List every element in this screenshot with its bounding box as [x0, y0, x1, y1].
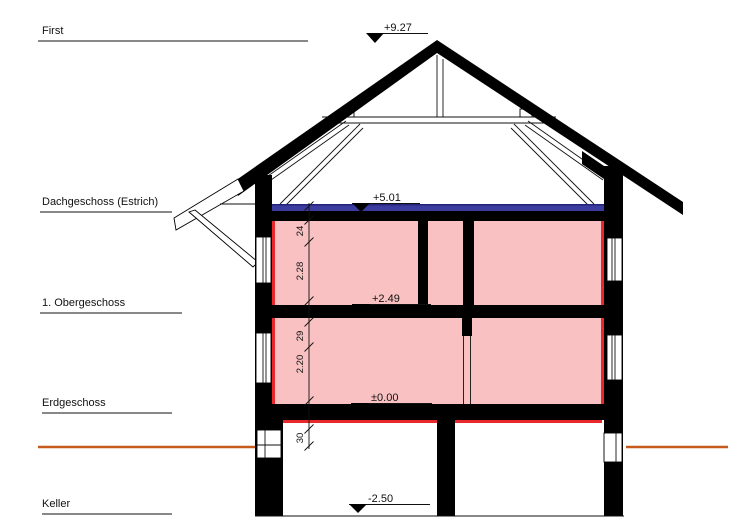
window-left-og — [256, 237, 271, 283]
dim-value-30: 30 — [295, 433, 306, 444]
dim-value-220: 2.20 — [295, 355, 306, 374]
slab-attic — [255, 211, 623, 221]
partition-og-1 — [418, 221, 428, 305]
window-right-og — [607, 238, 622, 281]
red-face-og-right — [601, 221, 604, 305]
slab-eg — [255, 404, 623, 420]
screed-band-top-edge — [272, 204, 604, 206]
rafter-right — [437, 40, 683, 215]
window-opening — [256, 237, 271, 283]
level-label-erdgeschoss: Erdgeschoss — [42, 397, 172, 413]
window-opening — [607, 335, 622, 380]
slab-og — [255, 305, 623, 318]
window-left-eg — [256, 333, 271, 383]
elevation-value: ±0.00 — [371, 392, 398, 404]
level-label-keller: Keller — [42, 498, 172, 514]
red-face-eg-right — [601, 318, 604, 404]
level-label-text: Dachgeschoss (Estrich) — [42, 196, 158, 208]
dim-value-24: 24 — [295, 226, 306, 237]
red-face-og-left — [272, 221, 275, 305]
level-label-first: First — [38, 25, 308, 41]
elevation-marker-keller: -2.50 — [349, 493, 430, 513]
storey-fill-og — [272, 221, 604, 305]
level-label-obergeschoss: 1. Obergeschoss — [40, 297, 182, 313]
building-section-drawing: First Dachgeschoss (Estrich) 1. Obergesc… — [0, 0, 729, 531]
window-left-basement — [257, 430, 281, 458]
window-opening — [256, 333, 271, 383]
elevation-triangle — [349, 504, 367, 513]
window-right-eg — [607, 335, 622, 380]
eave-brace-left — [189, 210, 258, 267]
level-label-text: Keller — [42, 498, 70, 510]
section-canvas: First Dachgeschoss (Estrich) 1. Obergesc… — [0, 0, 729, 531]
window-right-basement — [604, 433, 622, 462]
window-opening — [604, 433, 622, 462]
level-label-text: First — [42, 25, 63, 37]
elevation-value: +2.49 — [372, 293, 400, 305]
strut-left-a1 — [268, 121, 346, 176]
elevation-triangle — [366, 33, 384, 43]
level-label-text: 1. Obergeschoss — [42, 297, 126, 309]
wall-basement-interior — [437, 420, 455, 516]
door-lintel-eg — [462, 318, 472, 336]
rafter-left — [232, 40, 437, 196]
elevation-value: +9.27 — [384, 22, 412, 34]
window-opening — [257, 430, 281, 458]
window-opening — [607, 238, 622, 281]
level-label-dachgeschoss: Dachgeschoss (Estrich) — [40, 196, 172, 212]
level-label-text: Erdgeschoss — [42, 397, 106, 409]
dim-value-228: 2.28 — [295, 262, 306, 281]
storey-fill-eg — [272, 318, 604, 404]
elevation-value: +5.01 — [373, 192, 401, 204]
elevation-value: -2.50 — [368, 493, 393, 505]
dim-value-29: 29 — [295, 331, 306, 342]
red-face-eg-left — [272, 318, 275, 404]
elevation-marker-ridge: +9.27 — [366, 22, 428, 43]
partition-og-2 — [463, 221, 474, 305]
